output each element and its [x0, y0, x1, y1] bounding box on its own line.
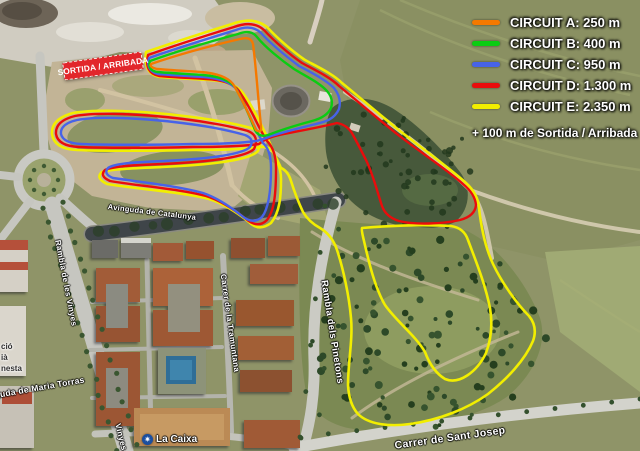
legend-label-B: CIRCUIT B: 400 m — [510, 36, 621, 51]
legend-item-E: CIRCUIT E: 2.350 m — [472, 96, 637, 117]
legend-swatch-A — [472, 20, 500, 25]
legend-label-A: CIRCUIT A: 250 m — [510, 15, 620, 30]
poi-text-fragment: ià — [1, 353, 8, 362]
poi-la-caixa: ✷ La Caixa — [142, 434, 197, 445]
legend-swatch-D — [472, 83, 500, 88]
bank-label: La Caixa — [156, 434, 197, 445]
bank-star-icon: ✷ — [142, 434, 153, 445]
legend-label-E: CIRCUIT E: 2.350 m — [510, 99, 631, 114]
legend-label-C: CIRCUIT C: 950 m — [510, 57, 621, 72]
legend-label-D: CIRCUIT D: 1.300 m — [510, 78, 631, 93]
legend-item-B: CIRCUIT B: 400 m — [472, 33, 637, 54]
legend-note: + 100 m de Sortida / Arribada — [472, 126, 637, 140]
satellite-map: SORTIDA / ARRIBADA CIRCUIT A: 250 mCIRCU… — [0, 0, 640, 451]
circuit-legend: CIRCUIT A: 250 mCIRCUIT B: 400 mCIRCUIT … — [472, 12, 637, 140]
legend-item-A: CIRCUIT A: 250 m — [472, 12, 637, 33]
legend-item-C: CIRCUIT C: 950 m — [472, 54, 637, 75]
legend-item-D: CIRCUIT D: 1.300 m — [472, 75, 637, 96]
legend-swatch-B — [472, 41, 500, 46]
legend-swatch-C — [472, 62, 500, 67]
legend-swatch-E — [472, 104, 500, 109]
poi-text-fragment: ció — [1, 342, 13, 351]
poi-text-fragment: nesta — [1, 364, 22, 373]
